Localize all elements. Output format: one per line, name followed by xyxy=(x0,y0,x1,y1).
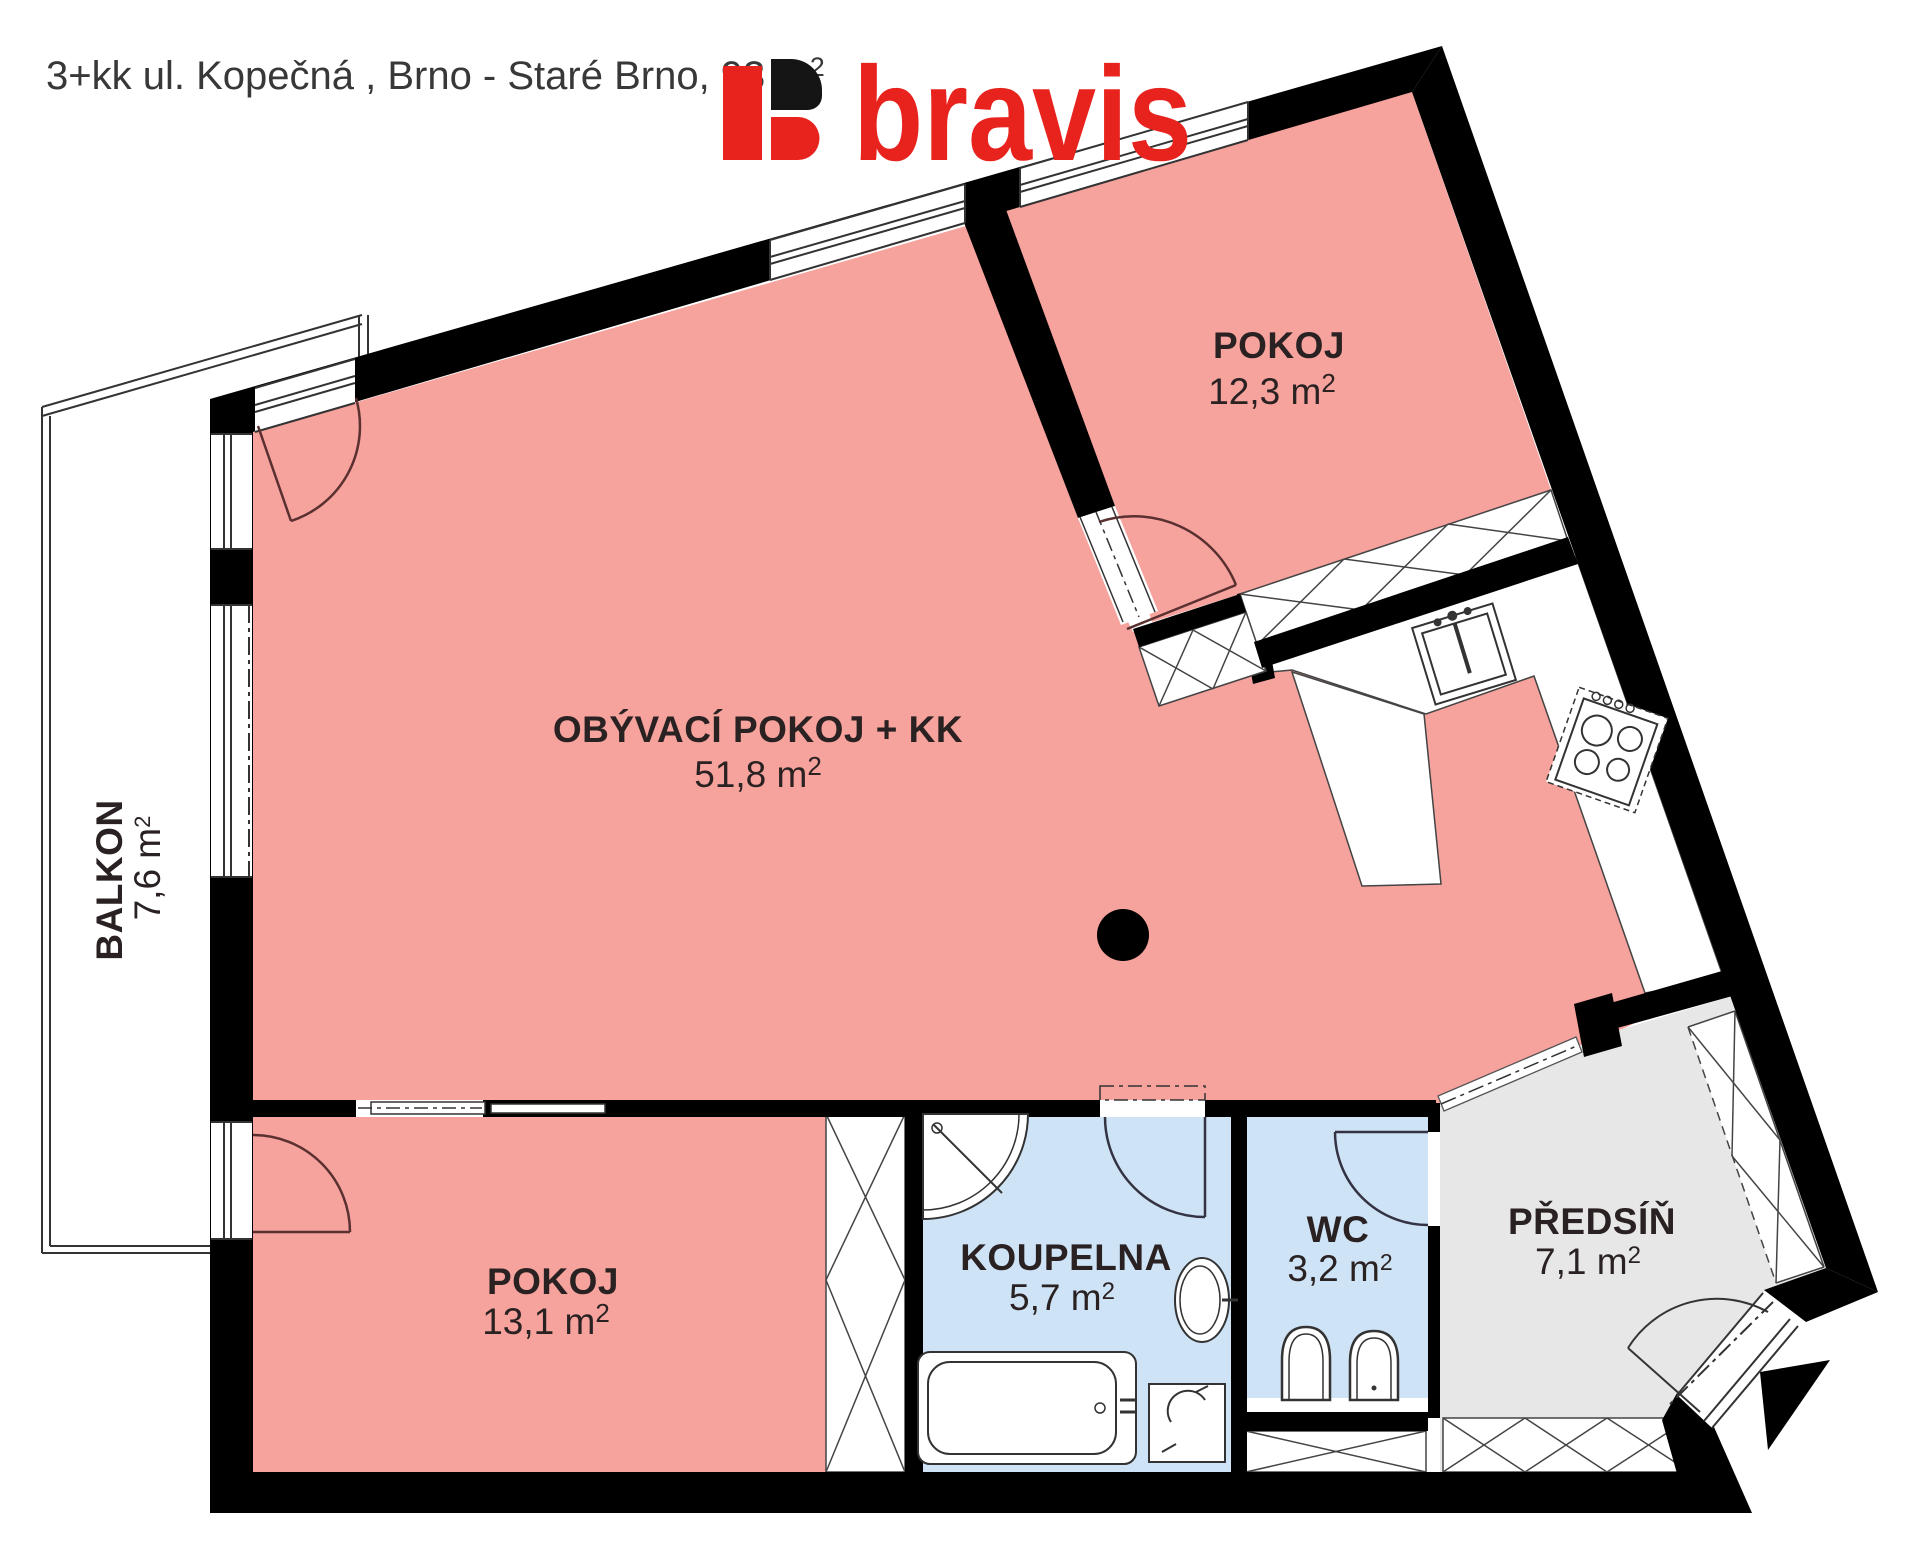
svg-text:OBÝVACÍ POKOJ + KK: OBÝVACÍ POKOJ + KK xyxy=(553,709,963,750)
svg-text:POKOJ: POKOJ xyxy=(487,1261,619,1302)
svg-text:BALKON: BALKON xyxy=(89,799,130,960)
svg-text:7,6 m2: 7,6 m2 xyxy=(127,816,168,921)
svg-text:5,7 m2: 5,7 m2 xyxy=(1009,1277,1115,1318)
svg-text:KOUPELNA: KOUPELNA xyxy=(960,1237,1172,1278)
svg-text:3,2 m2: 3,2 m2 xyxy=(1287,1248,1392,1289)
svg-text:7,1 m2: 7,1 m2 xyxy=(1535,1241,1641,1282)
svg-text:WC: WC xyxy=(1307,1209,1370,1250)
svg-text:POKOJ: POKOJ xyxy=(1213,325,1345,366)
svg-text:PŘEDSÍŇ: PŘEDSÍŇ xyxy=(1508,1200,1676,1242)
svg-text:3+kk ul. Kopečná , Brno - Star: 3+kk ul. Kopečná , Brno - Staré Brno, 93… xyxy=(46,52,825,98)
svg-text:51,8 m2: 51,8 m2 xyxy=(694,751,822,795)
svg-text:12,3 m2: 12,3 m2 xyxy=(1208,368,1336,412)
svg-text:13,1 m2: 13,1 m2 xyxy=(482,1298,610,1342)
svg-text:bravis: bravis xyxy=(853,40,1192,189)
